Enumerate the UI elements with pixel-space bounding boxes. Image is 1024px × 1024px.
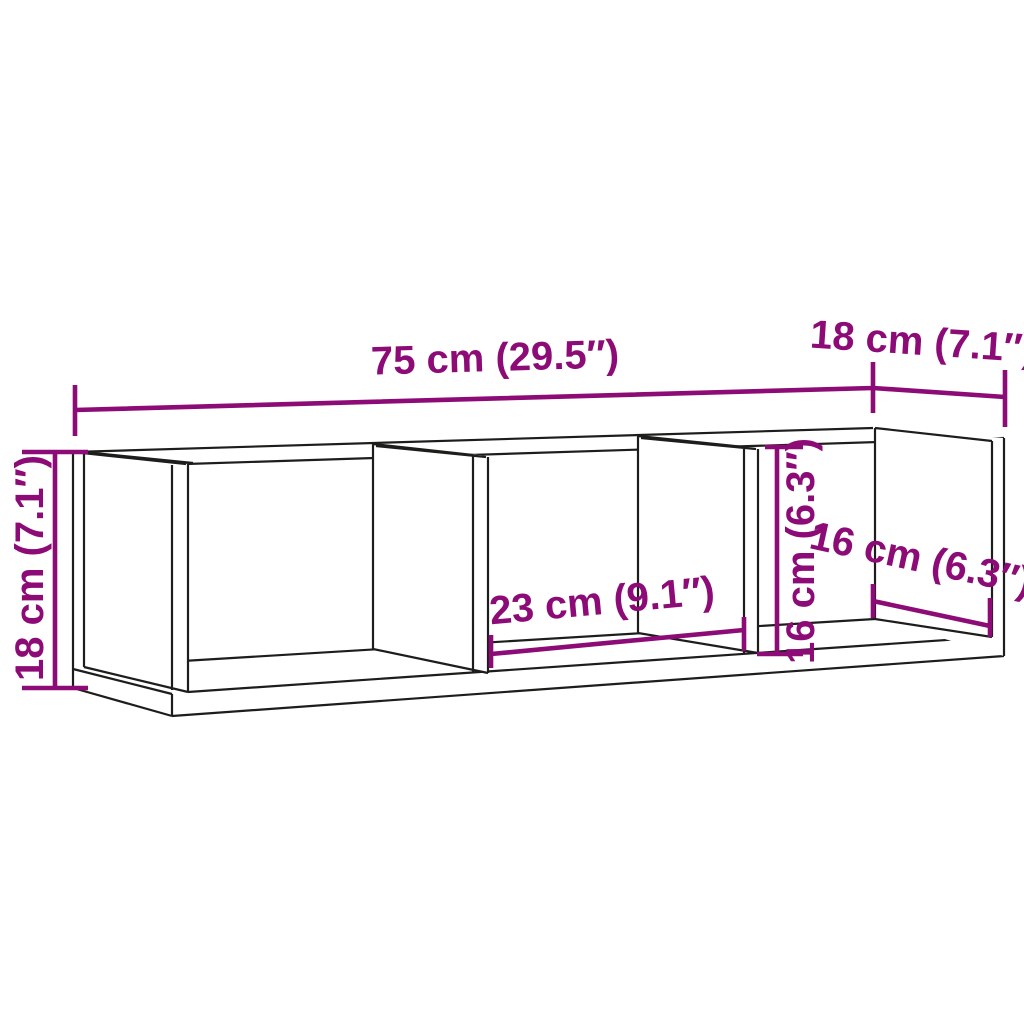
dim-total-depth-line bbox=[873, 370, 1005, 427]
dim-total-depth-label: 18 cm (7.1″) bbox=[809, 313, 1024, 372]
dimension-diagram: 75 cm (29.5″) 18 cm (7.1″) 18 cm (7.1″) … bbox=[0, 0, 1024, 1024]
divider-2-face bbox=[638, 436, 758, 653]
shelf-drawing bbox=[73, 428, 1004, 716]
base-slab bbox=[73, 656, 1004, 716]
dim-total-height: 18 cm (7.1″) bbox=[8, 452, 88, 688]
divider-1-face bbox=[373, 444, 488, 673]
dim-total-depth: 18 cm (7.1″) bbox=[809, 313, 1024, 427]
dim-total-width-label: 75 cm (29.5″) bbox=[370, 332, 619, 383]
dim-total-width: 75 cm (29.5″) bbox=[75, 332, 873, 436]
diagram-canvas: 75 cm (29.5″) 18 cm (7.1″) 18 cm (7.1″) … bbox=[0, 0, 1024, 1024]
dim-total-height-label: 18 cm (7.1″) bbox=[8, 455, 52, 681]
